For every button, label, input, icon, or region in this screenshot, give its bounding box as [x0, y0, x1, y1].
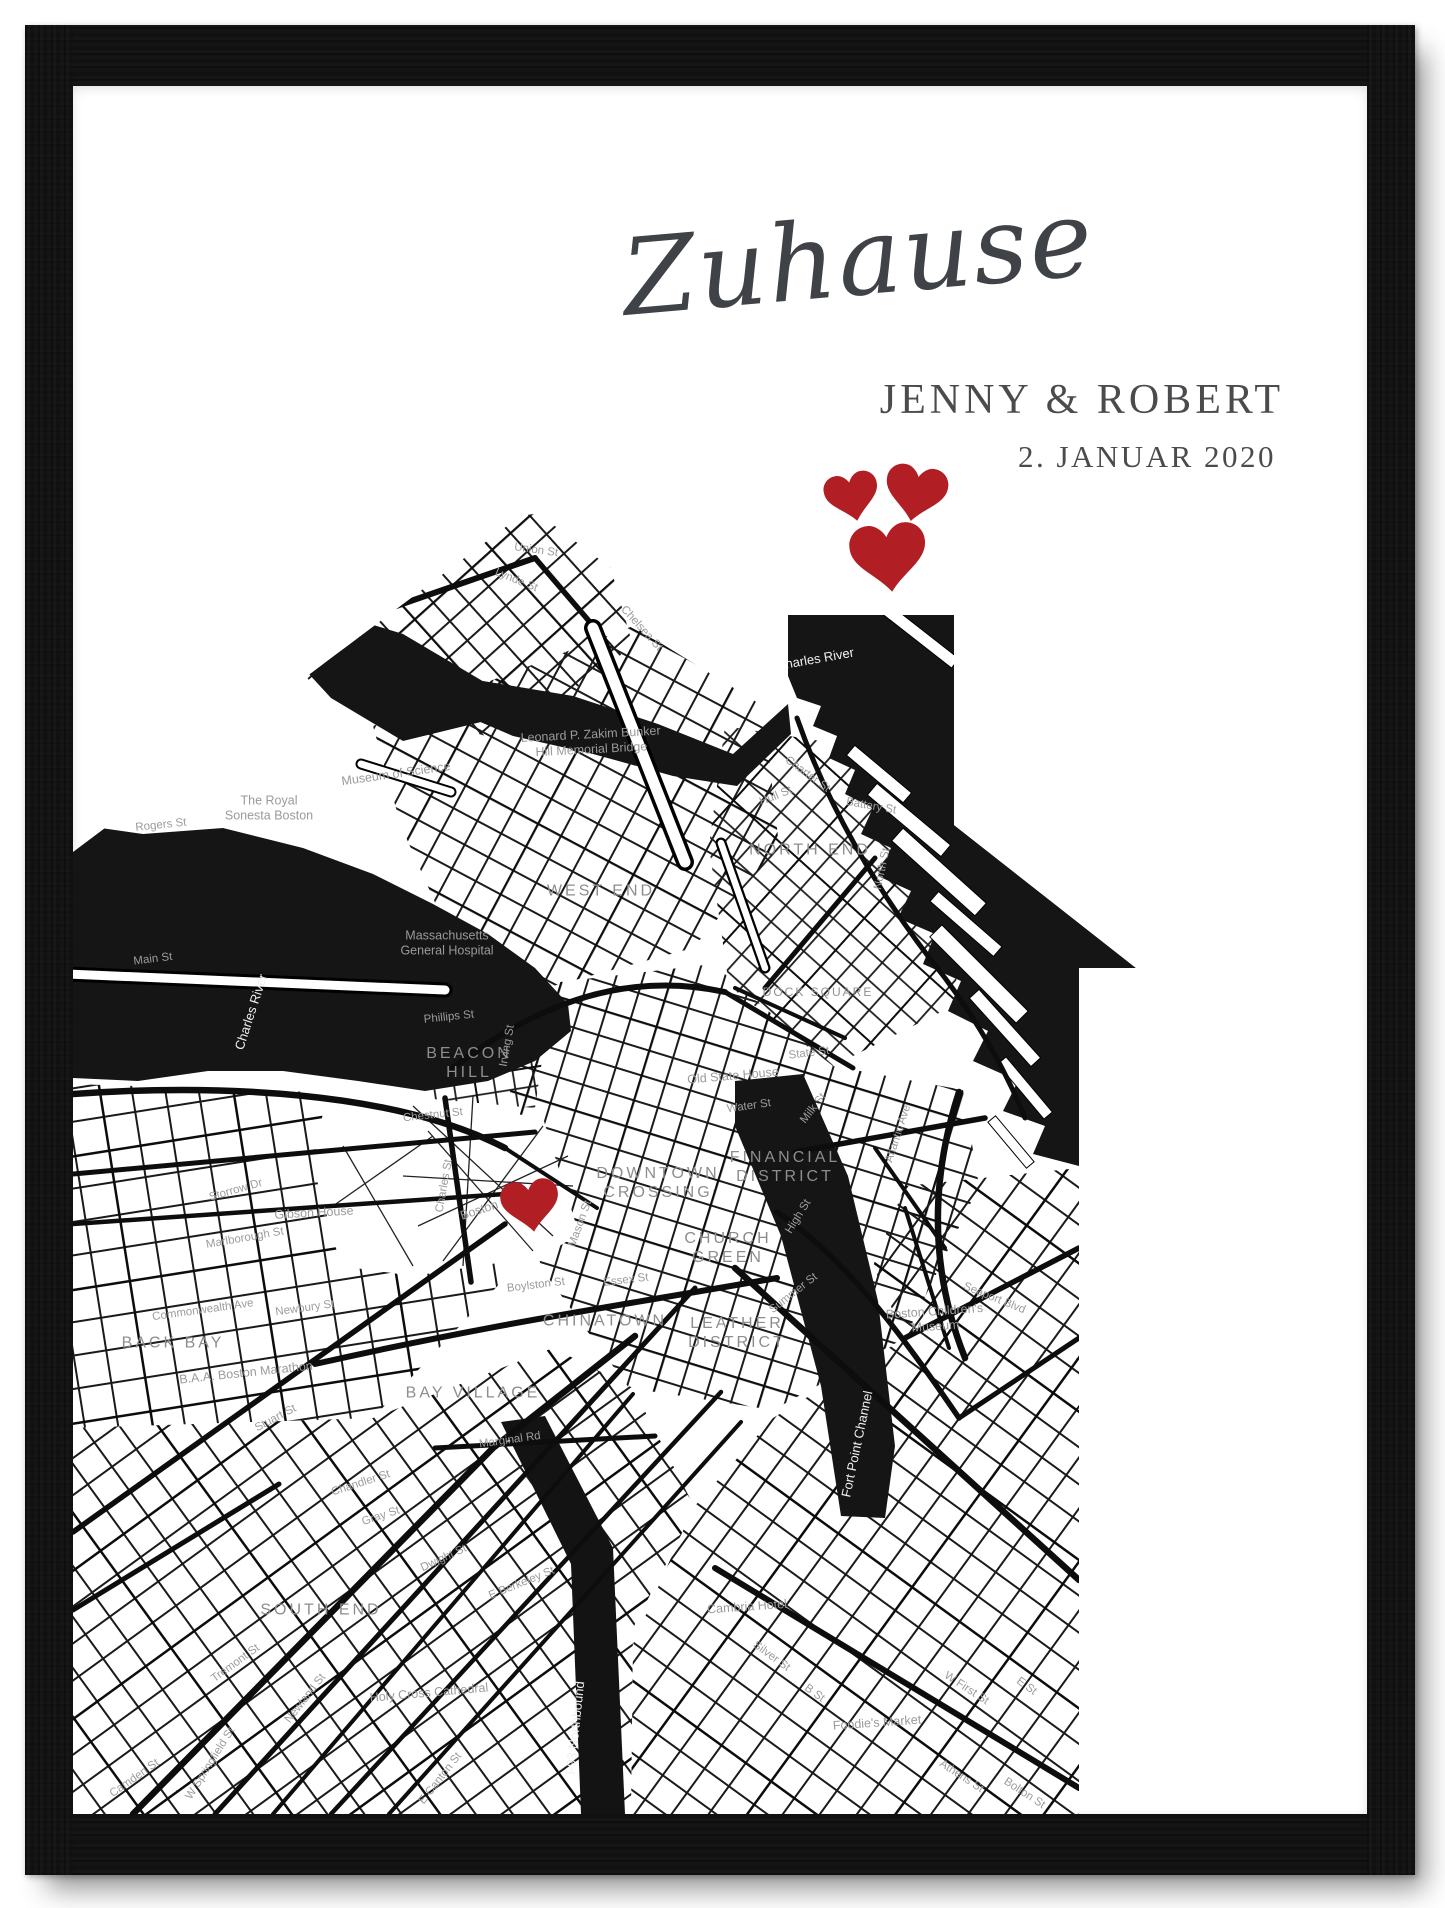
frame-grain-left: [25, 25, 73, 1875]
decor-heart: [847, 520, 930, 603]
poster-names: JENNY & ROBERT: [880, 376, 1284, 424]
picture-frame: NORTH ENDWEST ENDBEACON HILLDOWNTOWN CRO…: [25, 25, 1415, 1875]
map-marker-heart: [498, 1176, 564, 1242]
poster: NORTH ENDWEST ENDBEACON HILLDOWNTOWN CRO…: [73, 86, 1367, 1814]
decor-heart: [821, 468, 885, 533]
house-map: NORTH ENDWEST ENDBEACON HILLDOWNTOWN CRO…: [73, 86, 1367, 1814]
frame-grain-right: [1367, 25, 1415, 1875]
poster-date: 2. JANUAR 2020: [1018, 439, 1276, 475]
poster-title-script: Zuhause: [617, 176, 1099, 340]
boston-map-svg: [73, 86, 1367, 1814]
